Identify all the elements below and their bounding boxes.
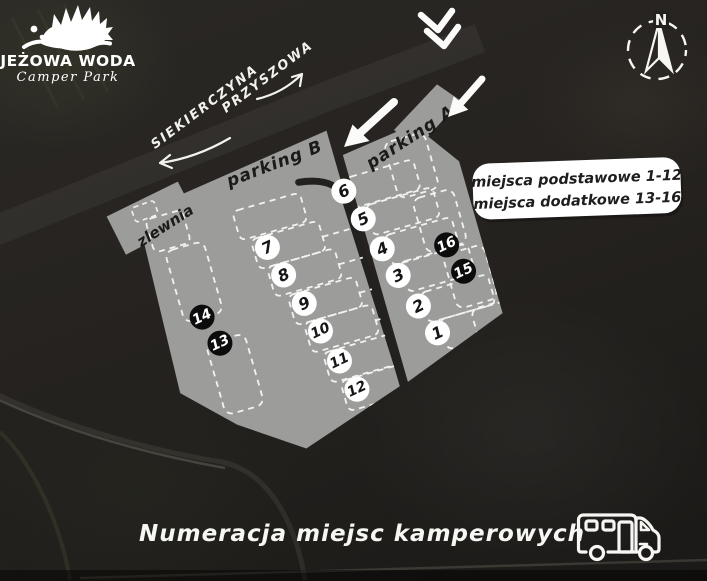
camper-icon bbox=[579, 515, 660, 560]
hedgehog-dot-icon bbox=[31, 26, 38, 33]
camper-park-numbering-map: parking B parking A zlewnia 123456789101… bbox=[0, 0, 707, 581]
logo: JEŻOWA WODA Camper Park bbox=[0, 5, 136, 85]
page-title: Numeracja miejsc kamperowych bbox=[139, 521, 585, 547]
hedgehog-dot-icon bbox=[40, 35, 45, 40]
legend-box: miejsca podstawowe 1-12 miejsca dodatkow… bbox=[471, 157, 684, 223]
compass-icon: N bbox=[628, 11, 686, 79]
logo-subtitle: Camper Park bbox=[17, 70, 120, 85]
compass-north-label: N bbox=[655, 11, 668, 29]
map-canvas: parking B parking A zlewnia 123456789101… bbox=[0, 0, 707, 581]
logo-title: JEŻOWA WODA bbox=[0, 51, 136, 70]
compass-needle bbox=[659, 22, 672, 71]
